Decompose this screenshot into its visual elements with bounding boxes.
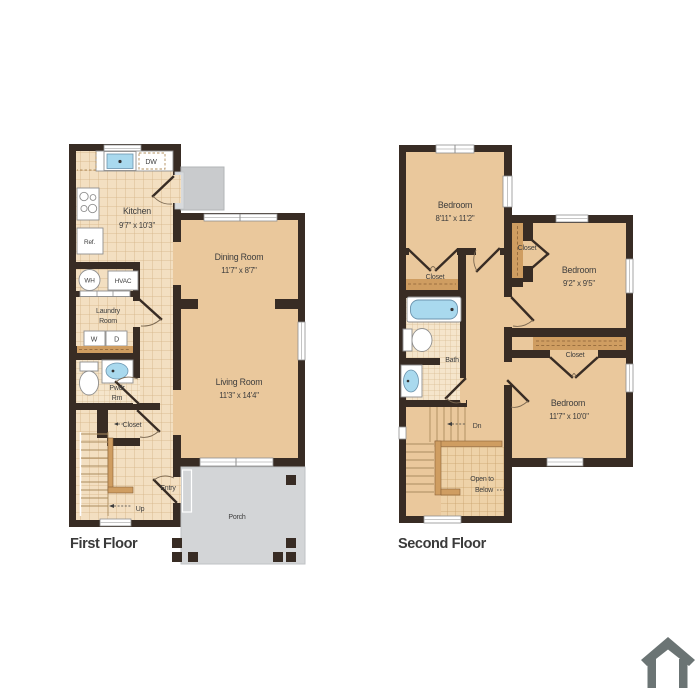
dining-label: Dining Room: [215, 252, 264, 262]
bedroom3-side-window: [626, 364, 633, 392]
closet2-label: Closet: [518, 245, 537, 252]
bedroom3-dims: 11'7" x 10'0": [549, 412, 589, 421]
first-floor-plan: Kitchen 9'7" x 10'3" Dining Room 11'7" x…: [69, 144, 305, 564]
powder-sink: [102, 360, 133, 383]
refrigerator-label: Ref.: [84, 239, 95, 246]
bedroom3-label: Bedroom: [551, 398, 585, 408]
bedroom1-label: Bedroom: [438, 200, 472, 210]
powder-label-2: Rm: [112, 395, 123, 402]
porch-label: Porch: [228, 514, 246, 521]
closet-label-ff: Closet: [123, 422, 142, 429]
stairwell-side-window: [399, 427, 406, 439]
house-icon: [641, 637, 695, 688]
stair-window: [100, 519, 131, 526]
kitchen-label: Kitchen: [123, 206, 151, 216]
floorplan-canvas: Kitchen 9'7" x 10'3" Dining Room 11'7" x…: [0, 0, 700, 700]
stove: [77, 188, 99, 220]
bathtub: [407, 297, 461, 322]
kitchen-dims: 9'7" x 10'3": [119, 221, 155, 230]
living-window: [200, 458, 273, 466]
living-label: Living Room: [216, 377, 263, 387]
whhvac-closet-doors: [80, 291, 130, 297]
closet3-label: Closet: [566, 352, 585, 359]
laundry-door-gap: [133, 301, 140, 327]
bedroom3-bottom-window: [547, 458, 583, 466]
dining-window: [204, 214, 277, 221]
dining-dims: 11'7" x 8'7": [221, 266, 257, 275]
floorplan-svg: Kitchen 9'7" x 10'3" Dining Room 11'7" x…: [0, 0, 700, 700]
powder-label-1: Pwdr: [109, 385, 125, 392]
bedroom2-top-window: [556, 215, 588, 222]
bath-sink: [401, 365, 422, 397]
washer-dryer: [77, 331, 133, 353]
stairwell-bottom-window: [424, 516, 461, 523]
bedroom1-side-window: [503, 176, 512, 207]
entry-label: Entry: [160, 485, 176, 492]
second-floor-title: Second Floor: [398, 536, 487, 552]
bedroom2-label: Bedroom: [562, 265, 596, 275]
closet1-label: Closet: [426, 274, 445, 281]
living-dims: 11'3" x 14'4": [219, 391, 259, 400]
first-floor-title: First Floor: [70, 536, 138, 552]
dishwasher-label: DW: [145, 159, 157, 166]
bedroom1-dims: 8'11" x 11'2": [435, 214, 474, 223]
open-below-label-1: Open to: [470, 476, 494, 483]
bath-label: Bath: [445, 357, 459, 364]
washer-label: W: [91, 337, 98, 344]
laundry-label-1: Laundry: [96, 308, 121, 315]
living-side-window: [298, 322, 305, 360]
bath-toilet: [403, 329, 432, 352]
hvac-label: HVAC: [115, 278, 132, 285]
up-label: Up: [136, 506, 145, 513]
open-below-label-2: Below: [475, 487, 494, 494]
water-heater-label: WH: [84, 278, 95, 285]
laundry-label-2: Room: [99, 318, 117, 325]
dryer-label: D: [114, 337, 119, 344]
second-floor-plan: Bedroom 8'11" x 11'2" Bedroom 9'2" x 9'5…: [398, 145, 633, 552]
bedroom2-dims: 9'2" x 9'5": [563, 279, 595, 288]
bedroom2-side-window: [626, 259, 633, 293]
side-stoop: [175, 167, 224, 210]
bedroom1-top-window: [436, 145, 474, 153]
dn-label: Dn: [473, 423, 482, 430]
powder-toilet: [80, 362, 99, 395]
